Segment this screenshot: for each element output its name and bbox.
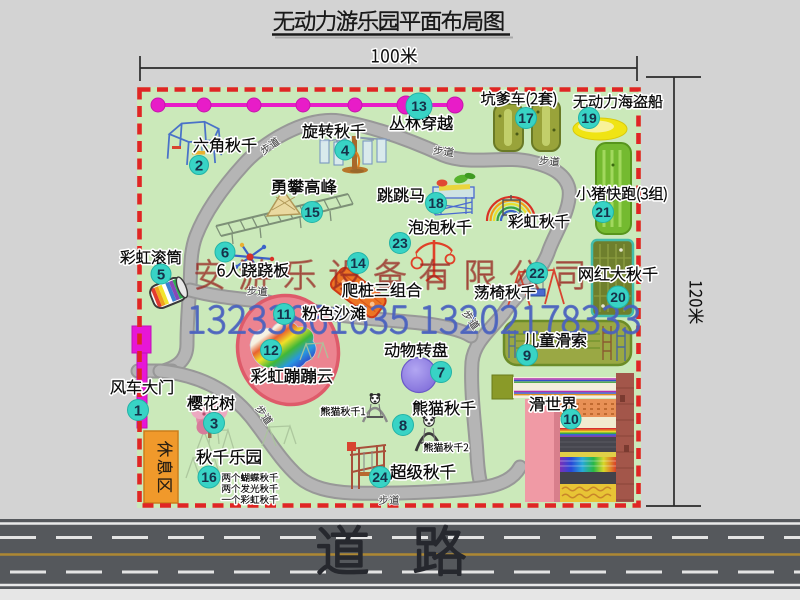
svg-text:4: 4 (341, 142, 350, 159)
svg-text:23: 23 (392, 235, 408, 251)
svg-text:18: 18 (428, 195, 444, 211)
svg-text:20: 20 (610, 289, 626, 305)
svg-text:13: 13 (411, 98, 427, 114)
svg-text:14: 14 (350, 255, 366, 271)
svg-text:11: 11 (277, 306, 292, 322)
svg-text:8: 8 (399, 417, 407, 434)
svg-text:12: 12 (263, 342, 279, 358)
svg-text:17: 17 (518, 110, 534, 126)
svg-text:16: 16 (201, 469, 217, 485)
svg-text:10: 10 (563, 411, 579, 427)
svg-text:2: 2 (195, 157, 203, 174)
svg-text:3: 3 (210, 415, 218, 432)
svg-text:1: 1 (134, 402, 142, 419)
svg-text:15: 15 (304, 204, 320, 220)
svg-text:6: 6 (221, 244, 229, 261)
svg-text:9: 9 (523, 347, 531, 364)
svg-text:24: 24 (372, 469, 388, 485)
svg-text:7: 7 (437, 364, 445, 381)
svg-text:22: 22 (529, 265, 545, 281)
svg-text:21: 21 (595, 204, 611, 220)
svg-text:19: 19 (581, 110, 597, 126)
svg-text:5: 5 (157, 266, 165, 283)
